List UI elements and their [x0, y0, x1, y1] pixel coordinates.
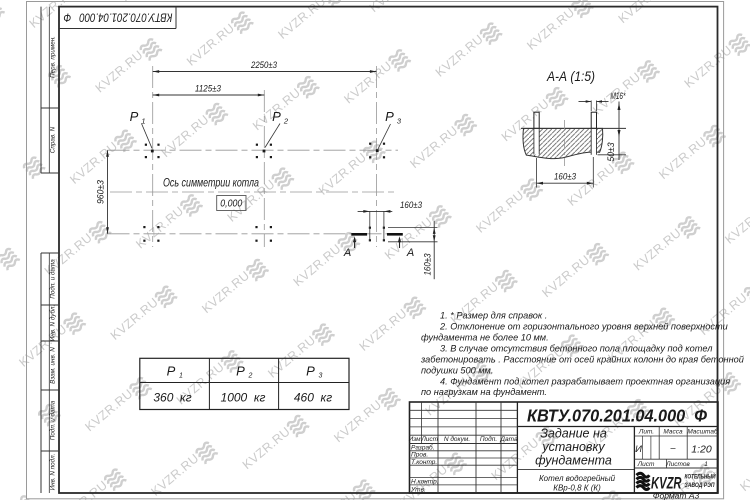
svg-text:1: 1 — [704, 461, 708, 468]
svg-text:160±3: 160±3 — [423, 254, 433, 276]
svg-text:Н.контр.: Н.контр. — [411, 479, 439, 486]
svg-text:P: P — [385, 109, 394, 124]
svg-text:А-А (1:5): А-А (1:5) — [546, 69, 595, 84]
svg-text:Лист: Лист — [420, 436, 438, 443]
svg-text:960±3: 960±3 — [96, 180, 106, 204]
svg-text:подушки 500 мм.: подушки 500 мм. — [421, 366, 493, 376]
svg-text:Т.контр.: Т.контр. — [411, 459, 437, 466]
svg-text:Взам. инв. N: Взам. инв. N — [50, 347, 57, 384]
svg-text:P: P — [130, 109, 139, 124]
svg-text:Масса: Масса — [663, 429, 683, 436]
svg-text:И: И — [635, 444, 642, 455]
svg-text:Перв. примен.: Перв. примен. — [50, 36, 57, 78]
svg-text:КВТУ.070.201.04.000 Ф: КВТУ.070.201.04.000 Ф — [64, 11, 173, 23]
svg-text:Масштаб: Масштаб — [687, 428, 718, 436]
svg-text:Листов: Листов — [665, 461, 690, 468]
svg-text:1. * Размер для справок .: 1. * Размер для справок . — [440, 311, 547, 321]
svg-text:3. В случае отсутствия бетонно: 3. В случае отсутствия бетонного пола пл… — [440, 344, 712, 354]
svg-text:установку: установку — [541, 440, 605, 454]
svg-text:50±3: 50±3 — [606, 142, 616, 162]
svg-text:по нагрузкам на фундамент.: по нагрузкам на фундамент. — [421, 387, 547, 397]
svg-text:4. Фундамент под котел разраба: 4. Фундамент под котел разрабатывает про… — [440, 377, 730, 387]
svg-text:Разраб.: Разраб. — [411, 444, 435, 452]
svg-text:160±3: 160±3 — [400, 200, 422, 210]
svg-text:Лит.: Лит. — [638, 429, 654, 436]
svg-text:0,000: 0,000 — [220, 198, 242, 210]
svg-text:КОТЕЛЬНЫЙ: КОТЕЛЬНЫЙ — [685, 472, 716, 481]
svg-text:2: 2 — [283, 117, 289, 126]
svg-text:2250±3: 2250±3 — [250, 60, 277, 71]
svg-text:3: 3 — [397, 117, 402, 126]
svg-text:Подп. и дата: Подп. и дата — [49, 259, 57, 299]
svg-text:160±3: 160±3 — [554, 172, 577, 182]
svg-text:Подп.: Подп. — [480, 435, 497, 443]
svg-text:1000 кг: 1000 кг — [221, 391, 266, 405]
svg-text:2: 2 — [248, 373, 253, 380]
svg-text:Р: Р — [236, 364, 245, 379]
svg-text:фундамента: фундамента — [535, 454, 612, 468]
svg-text:3: 3 — [319, 373, 323, 380]
svg-text:М16*: М16* — [611, 91, 626, 101]
svg-text:Дата: Дата — [499, 436, 518, 443]
svg-text:2. Отклонение от горизонтально: 2. Отклонение от горизонтального уровня … — [439, 322, 728, 332]
svg-text:Пров.: Пров. — [411, 452, 428, 459]
svg-text:Подп. и дата: Подп. и дата — [49, 400, 57, 440]
svg-text:460 кг: 460 кг — [294, 391, 332, 405]
svg-text:Р: Р — [306, 364, 315, 379]
svg-text:забетонировать . Расстояние от: забетонировать . Расстояние от осей край… — [420, 355, 744, 365]
svg-text:Котел водогрейный: Котел водогрейный — [539, 474, 616, 483]
svg-text:ЗАВОД РЭП: ЗАВОД РЭП — [685, 482, 715, 489]
svg-text:фундамента не более 10 мм.: фундамента не более 10 мм. — [421, 333, 549, 343]
svg-text:1:20: 1:20 — [691, 444, 712, 456]
svg-text:Ось симметрии котла: Ось симметрии котла — [163, 178, 259, 190]
svg-text:–: – — [669, 443, 676, 453]
svg-text:Формат А3: Формат А3 — [653, 491, 700, 500]
svg-text:КВТУ.070.201.04.000 Ф: КВТУ.070.201.04.000 Ф — [527, 406, 707, 426]
svg-text:КВр-0,8 К (К): КВр-0,8 К (К) — [553, 484, 601, 493]
svg-text:Р: Р — [167, 364, 176, 379]
svg-text:А: А — [406, 247, 414, 259]
svg-text:360 кг: 360 кг — [153, 391, 191, 405]
svg-text:Справ. N: Справ. N — [50, 126, 57, 153]
svg-text:Инв. N подл.: Инв. N подл. — [49, 454, 57, 491]
svg-text:А: А — [343, 247, 351, 259]
svg-text:1: 1 — [179, 373, 183, 380]
svg-text:Задание на: Задание на — [540, 427, 607, 441]
svg-text:N докум.: N докум. — [444, 435, 470, 443]
svg-text:Утв.: Утв. — [410, 487, 426, 494]
svg-text:1125±3: 1125±3 — [195, 84, 222, 95]
svg-text:P: P — [272, 109, 281, 124]
svg-text:Лист: Лист — [637, 461, 655, 468]
svg-text:Инв. N дубл.: Инв. N дубл. — [49, 305, 57, 341]
